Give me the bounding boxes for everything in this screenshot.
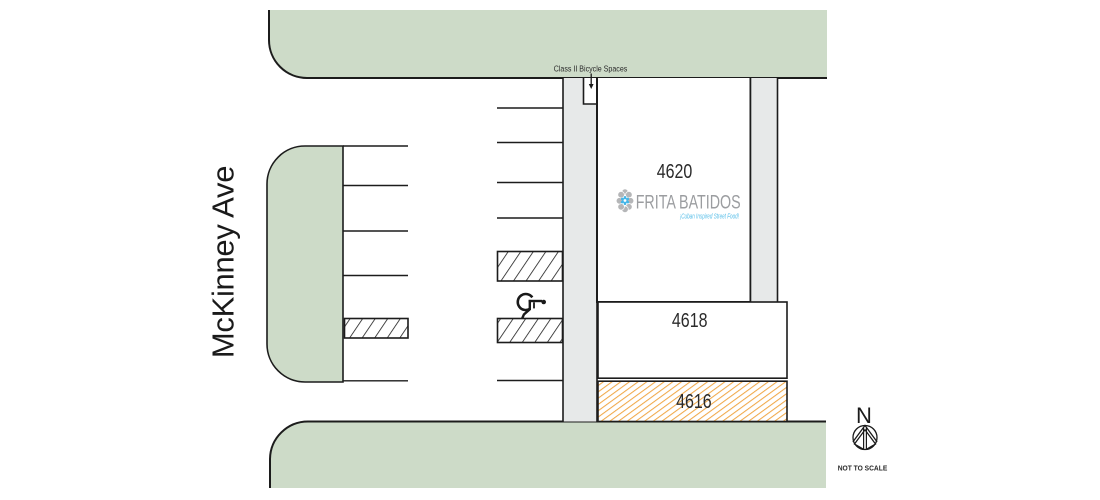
svg-text:FRITA BATIDOS: FRITA BATIDOS bbox=[636, 192, 741, 214]
svg-text:¡Cuban Inspired Street Food!: ¡Cuban Inspired Street Food! bbox=[680, 214, 740, 221]
svg-text:NOT TO SCALE: NOT TO SCALE bbox=[838, 464, 888, 472]
svg-text:McKinney Ave: McKinney Ave bbox=[206, 166, 241, 358]
svg-text:Class II Bicycle Spaces: Class II Bicycle Spaces bbox=[554, 64, 628, 73]
svg-text:4616: 4616 bbox=[676, 390, 712, 412]
svg-text:N: N bbox=[856, 403, 872, 428]
svg-text:4618: 4618 bbox=[672, 309, 708, 331]
svg-text:4620: 4620 bbox=[657, 160, 693, 182]
